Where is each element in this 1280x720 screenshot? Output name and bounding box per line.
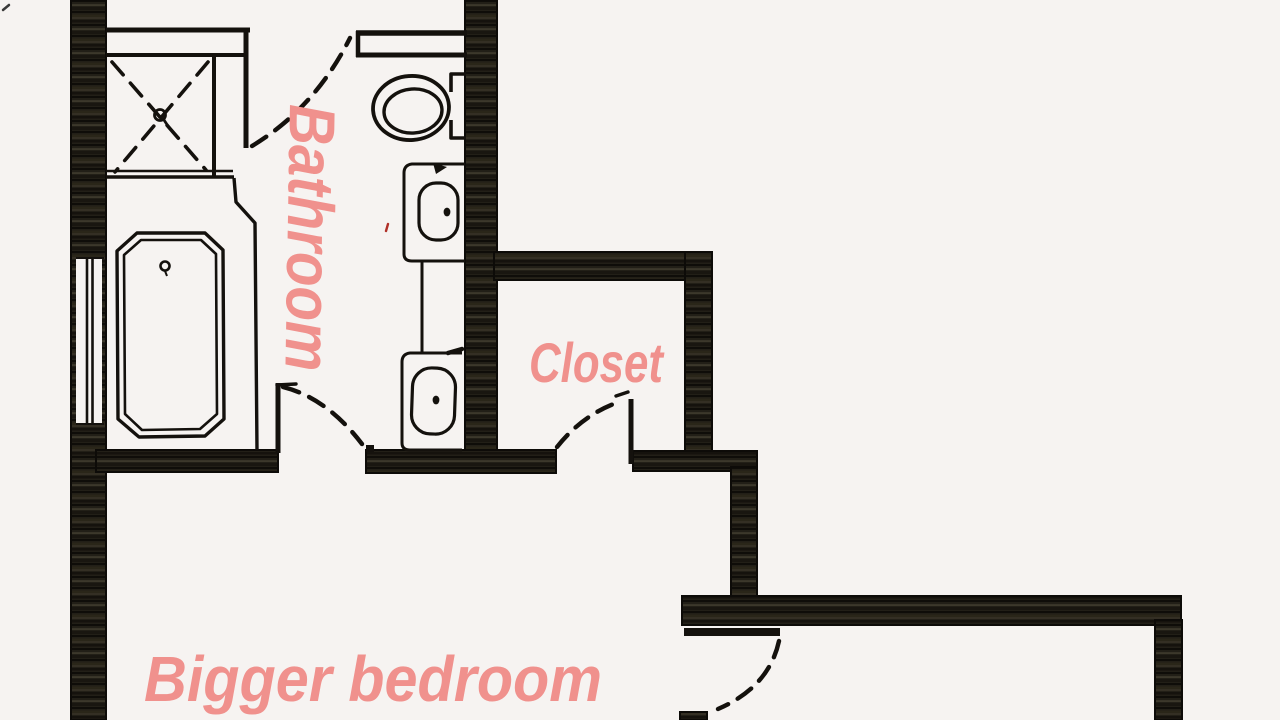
svg-text:Bigger bedroom: Bigger bedroom — [144, 643, 602, 715]
svg-text:Bathroom: Bathroom — [271, 104, 349, 372]
svg-text:Closet: Closet — [529, 331, 665, 394]
